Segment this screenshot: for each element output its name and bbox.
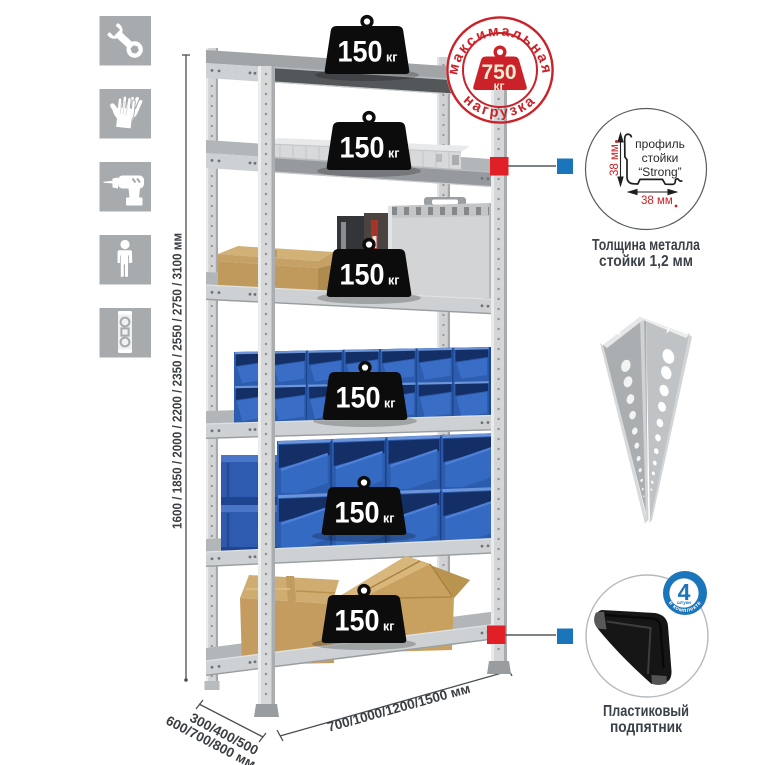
svg-text:штуки: штуки xyxy=(677,600,691,605)
svg-text:Пластиковый: Пластиковый xyxy=(603,703,689,720)
svg-text:700/1000/1200/1500 мм: 700/1000/1200/1500 мм xyxy=(326,681,472,735)
svg-text:1600 / 1850 / 2000 / 2200 / 23: 1600 / 1850 / 2000 / 2200 / 2350 / 2550 … xyxy=(170,233,185,529)
svg-text:38 мм: 38 мм xyxy=(641,195,673,207)
svg-text:кг: кг xyxy=(493,79,504,93)
svg-text:Толщина металла: Толщина металла xyxy=(592,237,700,254)
svg-text:стойки: стойки xyxy=(642,151,679,165)
svg-text:38 мм: 38 мм xyxy=(609,144,621,176)
svg-text:“Strong”: “Strong” xyxy=(638,165,681,179)
svg-text:профиль: профиль xyxy=(635,137,685,151)
svg-text:подпятник: подпятник xyxy=(610,719,682,736)
svg-text:стойки 1,2 мм: стойки 1,2 мм xyxy=(599,253,693,270)
